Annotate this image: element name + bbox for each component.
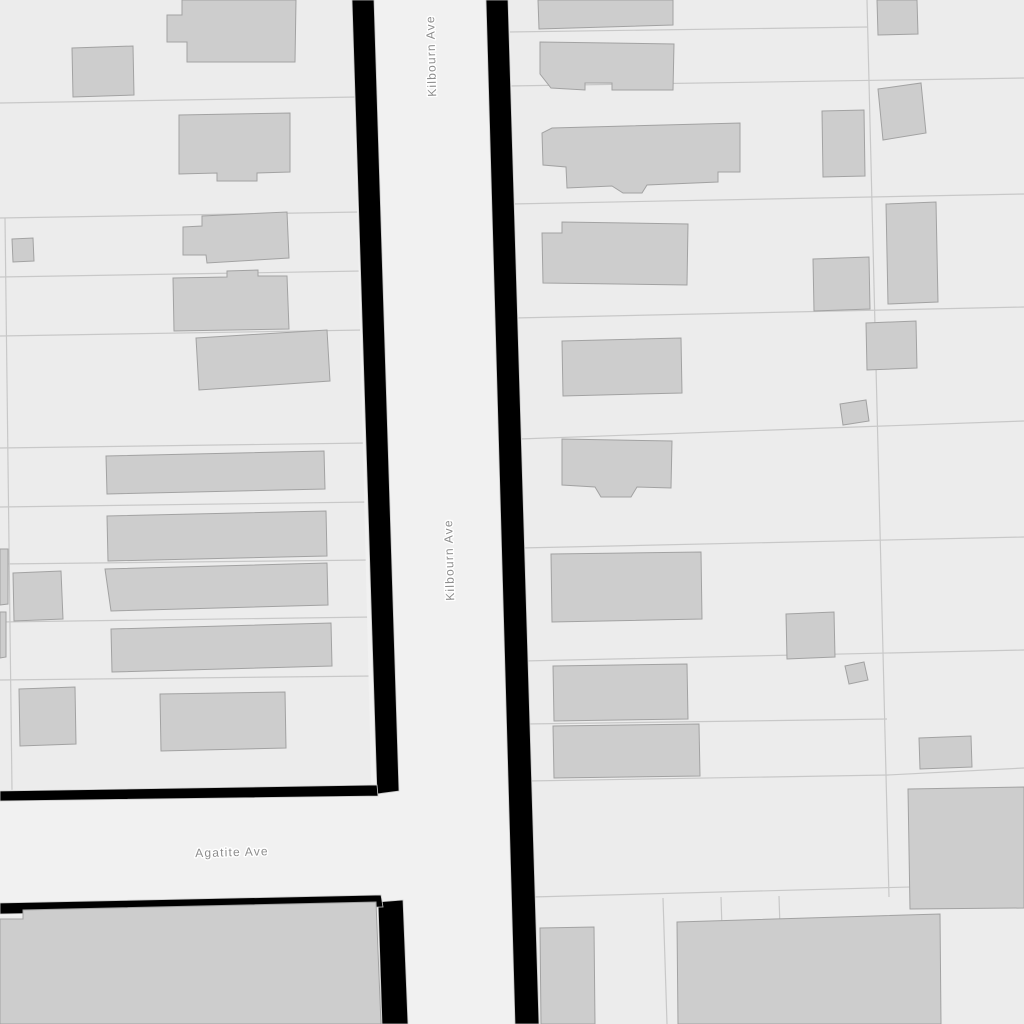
building-footprint [540, 927, 595, 1024]
building-footprint [196, 330, 330, 390]
street-label-kilbourn-ave: Kilbourn Ave [423, 15, 439, 97]
building-footprint [866, 321, 917, 370]
building-footprint [542, 222, 688, 285]
building-footprint [677, 914, 941, 1024]
street-casing-kilbourn-ave-west-south [378, 900, 408, 1024]
building-footprint [0, 549, 8, 605]
building-footprint [813, 257, 870, 311]
street-label-agatite-ave: Agatite Ave [195, 844, 269, 860]
building-footprint [786, 612, 835, 659]
building-footprint [0, 612, 6, 658]
building-footprint [19, 687, 76, 746]
building-footprint [919, 736, 972, 769]
building-footprint [540, 42, 674, 90]
building-footprint [553, 664, 688, 721]
building-footprint [0, 902, 381, 1024]
map-viewport: Kilbourn AveKilbourn AveAgatite Ave [0, 0, 1024, 1024]
building-footprint [886, 202, 938, 304]
street-label-kilbourn-ave: Kilbourn Ave [441, 519, 457, 601]
building-footprint [13, 571, 63, 621]
building-footprint [72, 46, 134, 97]
building-footprint [105, 563, 328, 611]
building-footprint [111, 623, 332, 672]
building-footprint [908, 787, 1024, 909]
building-footprint [106, 451, 325, 494]
building-footprint [877, 0, 918, 35]
building-footprint [542, 123, 740, 193]
building-footprint [107, 511, 327, 561]
building-footprint [173, 270, 289, 331]
map-canvas[interactable]: Kilbourn AveKilbourn AveAgatite Ave [0, 0, 1024, 1024]
building-footprint [179, 113, 290, 181]
building-footprint [551, 552, 702, 622]
building-footprint [878, 83, 926, 140]
building-footprint [538, 0, 673, 29]
building-footprint [822, 110, 865, 177]
building-footprint [845, 662, 868, 684]
building-footprint [12, 238, 34, 262]
building-footprint [160, 692, 286, 751]
building-footprint [562, 338, 682, 396]
building-footprint [840, 400, 869, 425]
building-footprint [553, 724, 700, 778]
